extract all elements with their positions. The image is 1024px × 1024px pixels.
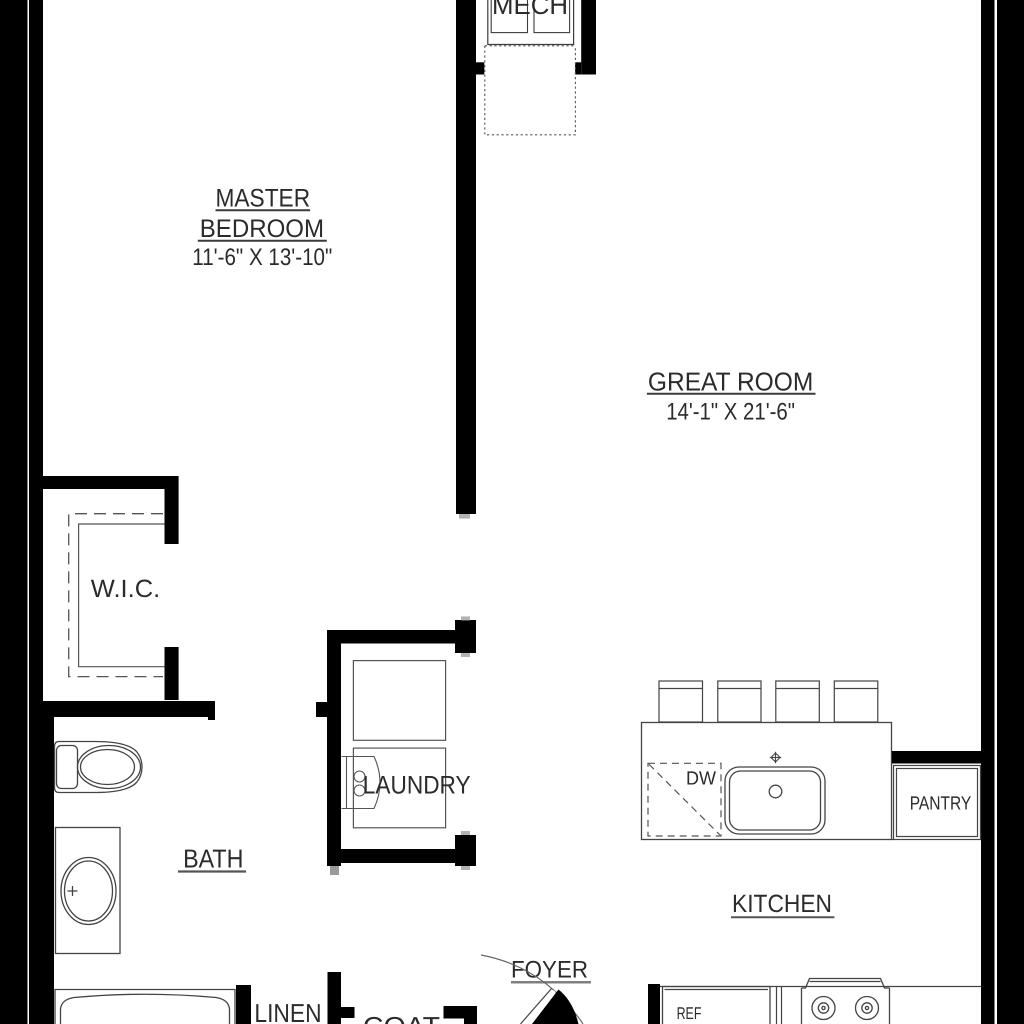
svg-text:LAUNDRY: LAUNDRY [363, 772, 471, 800]
svg-text:PANTRY: PANTRY [910, 794, 972, 815]
svg-text:LINEN: LINEN [254, 998, 321, 1024]
svg-text:FOYER: FOYER [511, 957, 588, 984]
svg-text:COAT: COAT [363, 1011, 440, 1024]
svg-text:BATH: BATH [183, 844, 243, 874]
svg-text:11'-6" X 13'-10": 11'-6" X 13'-10" [192, 244, 332, 271]
svg-text:14'-1" X 21'-6": 14'-1" X 21'-6" [666, 399, 795, 426]
svg-text:MASTER: MASTER [216, 185, 311, 213]
svg-text:GREAT ROOM: GREAT ROOM [648, 367, 813, 397]
svg-text:DW: DW [686, 769, 716, 790]
svg-text:KITCHEN: KITCHEN [732, 890, 832, 918]
svg-text:REF: REF [677, 1004, 702, 1023]
svg-text:MECH: MECH [492, 0, 568, 20]
svg-text:W.I.C.: W.I.C. [91, 575, 160, 603]
svg-text:BEDROOM: BEDROOM [200, 215, 324, 243]
